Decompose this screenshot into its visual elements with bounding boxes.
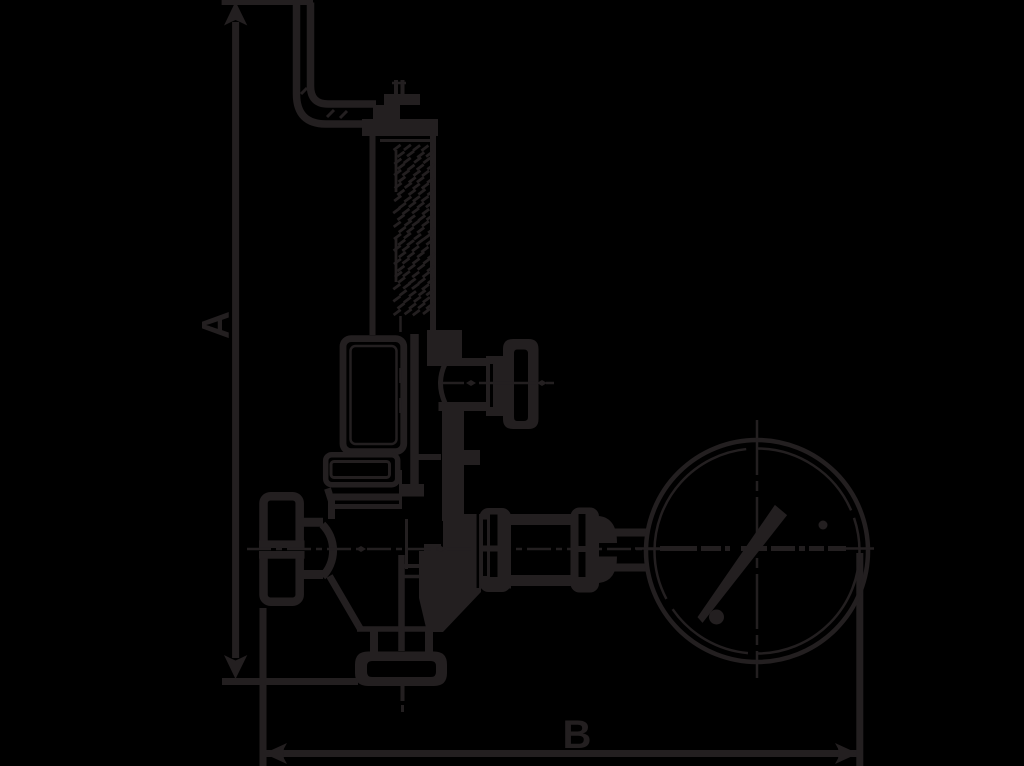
svg-text:B: B xyxy=(563,713,592,757)
svg-text:A: A xyxy=(195,311,238,339)
